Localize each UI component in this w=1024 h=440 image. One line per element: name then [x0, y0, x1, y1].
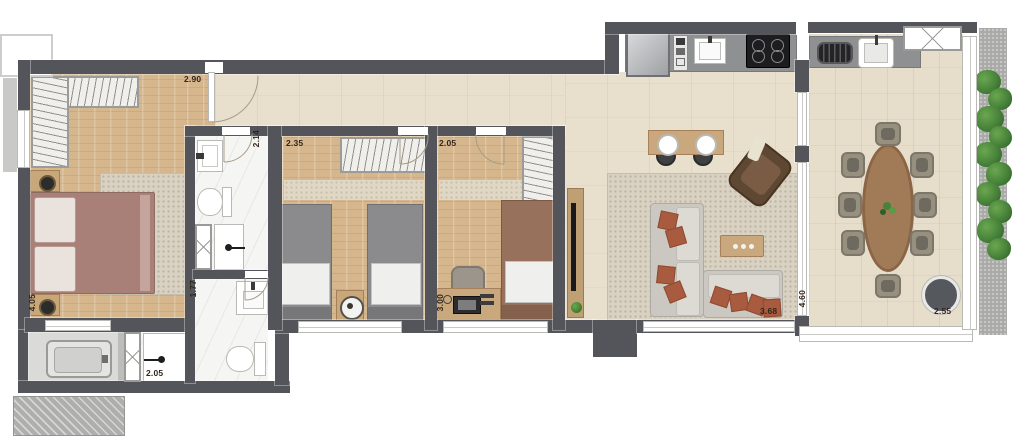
dim-terrace-width: 2.55 — [934, 306, 951, 316]
door-gap-bath-suite — [222, 127, 250, 135]
dim-bedroom3-width: 2.05 — [439, 138, 456, 148]
dim-bedroom3-depth: 3.00 — [435, 294, 445, 311]
door-leaf-master — [208, 72, 215, 122]
kitchen-terrace-gap — [796, 22, 808, 35]
window-living — [643, 321, 795, 332]
shower-door-icon — [124, 332, 141, 382]
dim-terrace-depth: 4.60 — [797, 290, 807, 307]
shower-door-icon — [195, 224, 212, 270]
terrace-right-glass — [962, 36, 977, 330]
duct-shaft-icon — [903, 26, 962, 51]
dim-master-depth: 4.05 — [27, 294, 37, 311]
terrace-bottom-glass — [799, 326, 973, 342]
dim-bedroom2-width: 2.35 — [286, 138, 303, 148]
partition-glass-upper — [797, 92, 807, 146]
door-gap-bedroom3 — [476, 127, 506, 135]
door-gap-bedroom2 — [398, 127, 428, 135]
dim-master-width: 2.90 — [184, 74, 201, 84]
door-gap-bath2 — [245, 271, 268, 278]
dim-bath2-depth: 1.77 — [188, 280, 198, 297]
dim-bath-suite-width: 2.14 — [251, 130, 261, 147]
dim-bath2-width: 2.05 — [146, 368, 163, 378]
floor-plan: 2.90 4.05 2.14 2.35 2.05 3.00 1.77 2.05 … — [0, 0, 1024, 440]
window-master-left — [17, 110, 30, 168]
window-bedroom3 — [443, 321, 548, 333]
dim-living-width: 3.68 — [760, 306, 777, 316]
opening-master-tub — [45, 320, 111, 331]
window-bedroom2 — [298, 321, 402, 333]
